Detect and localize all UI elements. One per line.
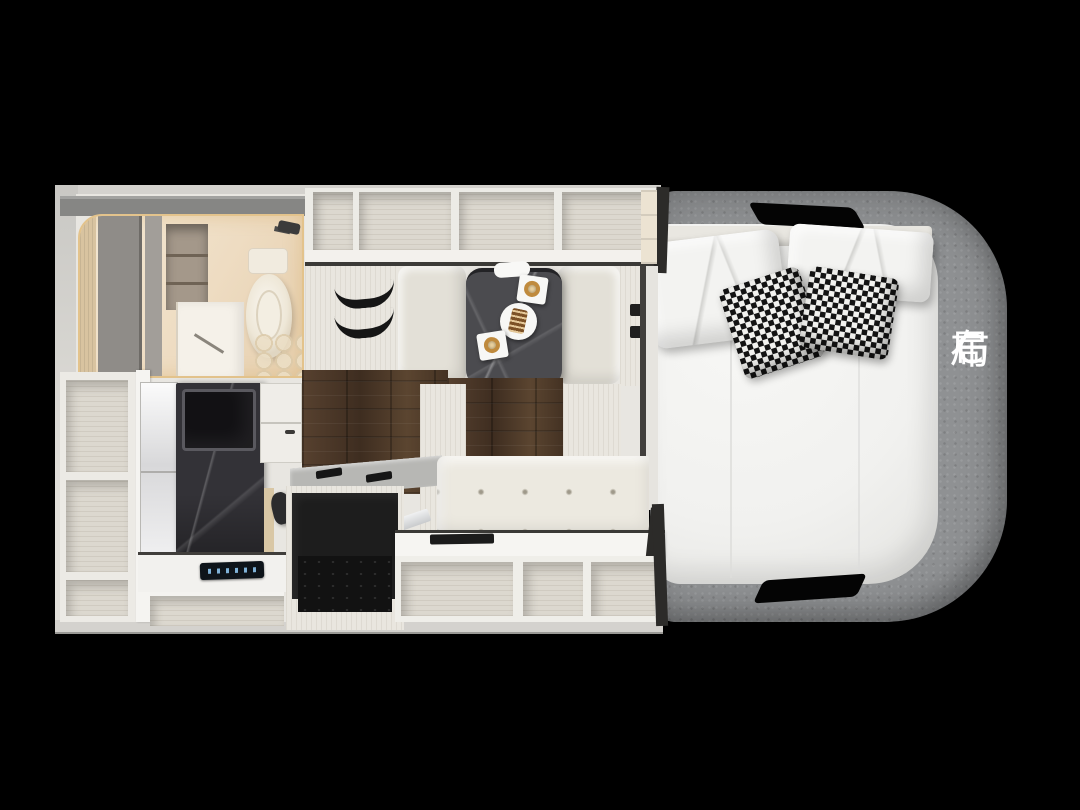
bathroom-hex-tiles [254, 334, 304, 378]
locker-compartment [459, 192, 554, 250]
shower-head [277, 220, 301, 235]
sink-latch [316, 467, 342, 479]
overhead-lockers [305, 188, 665, 266]
sink-latch [366, 471, 392, 483]
counter-tablet [430, 533, 494, 544]
tv-stone-column [176, 383, 264, 568]
shelf-cubby [66, 480, 128, 572]
cooktop-panel-lights [208, 567, 256, 574]
refrigerator-lower [298, 556, 392, 612]
bathroom-partition-narrow [145, 216, 162, 378]
tv-screen [182, 389, 256, 451]
coffee-cup [483, 336, 501, 354]
left-shelf-unit [60, 372, 138, 622]
toilet-seat [256, 290, 282, 340]
cabinet-handle [285, 430, 295, 434]
coffee-plate [516, 274, 548, 305]
bathroom-storage-niche [166, 224, 208, 310]
mirror-cabinet [140, 382, 178, 566]
corner-cabinet-top-right [641, 190, 657, 264]
storage-cubby [591, 562, 655, 616]
storage-cubby [401, 562, 513, 616]
bathroom [78, 214, 304, 378]
dinette-bench-right [558, 266, 620, 384]
bathroom-wall-strip [80, 216, 96, 378]
storage-cubbies [395, 556, 663, 622]
storage-cubby [523, 562, 583, 616]
bench-base-right [563, 384, 621, 460]
cabinet-seam [261, 422, 301, 424]
elastic-strap [334, 279, 396, 310]
shower-door [176, 302, 244, 378]
pastry [508, 308, 529, 335]
bathroom-partition [98, 216, 142, 378]
shower-door-handle [194, 333, 224, 354]
shelf-cubby [66, 380, 128, 472]
kitchen-cubby [150, 592, 284, 626]
strap-wardrobe [305, 266, 400, 384]
mirror-cabinet-seam [141, 471, 177, 473]
elastic-strap [334, 307, 396, 340]
shelf-cubby [66, 580, 128, 616]
niche-shelf [166, 254, 208, 257]
locker-compartment [359, 192, 451, 250]
layout-label-char: 局 [950, 328, 990, 372]
niche-shelf [166, 282, 208, 285]
bathroom-top-band [60, 196, 310, 216]
cooktop-control-panel [200, 561, 265, 580]
dinette-bench-left [398, 266, 466, 384]
locker-lip [305, 250, 665, 262]
kitchen-overhead-cabinet [260, 383, 302, 463]
locker-compartment [562, 192, 653, 250]
coffee-plate [476, 330, 509, 361]
refrigerator-frame [286, 486, 404, 630]
houndstooth-pillow [798, 265, 900, 360]
rv-floorplan-canvas: C 布 局 [0, 0, 1080, 810]
locker-compartment [313, 192, 353, 250]
toilet-tank [248, 248, 288, 274]
coffee-cup [523, 280, 541, 298]
